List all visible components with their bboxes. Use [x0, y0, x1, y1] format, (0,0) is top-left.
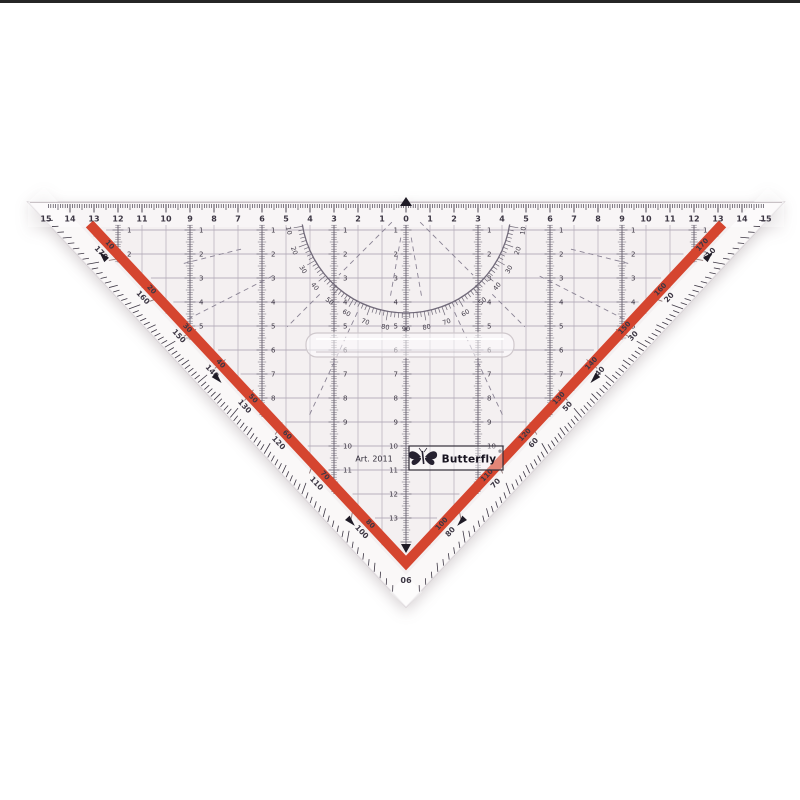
- svg-text:10: 10: [343, 443, 352, 451]
- svg-text:4: 4: [487, 299, 492, 307]
- svg-text:6: 6: [559, 347, 564, 355]
- svg-text:7: 7: [235, 215, 241, 224]
- svg-text:1: 1: [379, 215, 385, 224]
- svg-text:7: 7: [559, 371, 563, 379]
- svg-text:6: 6: [259, 215, 265, 224]
- svg-text:4: 4: [499, 215, 505, 224]
- svg-text:4: 4: [307, 215, 313, 224]
- svg-text:10: 10: [519, 226, 528, 236]
- svg-text:13: 13: [712, 215, 723, 224]
- svg-text:10: 10: [284, 226, 293, 236]
- svg-text:15: 15: [40, 215, 52, 224]
- svg-text:2: 2: [199, 251, 203, 259]
- svg-text:2: 2: [343, 251, 347, 259]
- svg-text:7: 7: [343, 371, 347, 379]
- svg-text:4: 4: [199, 299, 204, 307]
- svg-text:14: 14: [64, 215, 76, 224]
- svg-text:12: 12: [688, 215, 699, 224]
- svg-text:4: 4: [343, 299, 348, 307]
- svg-text:5: 5: [283, 215, 289, 224]
- svg-text:9: 9: [394, 419, 398, 427]
- svg-text:11: 11: [343, 467, 352, 475]
- svg-text:5: 5: [343, 323, 347, 331]
- brand-box: Butterfly ®: [409, 446, 503, 470]
- svg-text:9: 9: [487, 419, 491, 427]
- svg-text:3: 3: [199, 275, 203, 283]
- svg-text:12: 12: [112, 215, 123, 224]
- set-square-ruler: 1234567891011121312345678910111234567891…: [28, 187, 784, 607]
- svg-text:5: 5: [523, 215, 529, 224]
- svg-text:1: 1: [427, 215, 433, 224]
- svg-text:8: 8: [487, 395, 491, 403]
- svg-text:14: 14: [736, 215, 748, 224]
- svg-text:6: 6: [271, 347, 276, 355]
- svg-text:8: 8: [394, 395, 398, 403]
- svg-text:9: 9: [187, 215, 193, 224]
- finger-grip-handle: [306, 333, 514, 357]
- svg-text:7: 7: [571, 215, 577, 224]
- svg-text:6: 6: [547, 215, 553, 224]
- svg-text:3: 3: [475, 215, 481, 224]
- svg-text:10: 10: [160, 215, 172, 224]
- svg-text:1: 1: [559, 227, 563, 235]
- svg-text:10: 10: [640, 215, 652, 224]
- svg-text:5: 5: [199, 323, 203, 331]
- trademark-symbol: ®: [498, 448, 503, 455]
- svg-text:90: 90: [402, 325, 410, 333]
- svg-text:11: 11: [664, 215, 676, 224]
- svg-text:13: 13: [389, 515, 398, 523]
- brand-text: Butterfly: [442, 454, 497, 466]
- svg-text:1: 1: [271, 227, 275, 235]
- svg-text:7: 7: [271, 371, 275, 379]
- svg-text:15: 15: [760, 215, 772, 224]
- svg-text:4: 4: [271, 299, 276, 307]
- svg-text:2: 2: [631, 251, 635, 259]
- svg-text:3: 3: [331, 215, 337, 224]
- svg-text:1: 1: [631, 227, 635, 235]
- svg-text:13: 13: [88, 215, 99, 224]
- svg-text:8: 8: [271, 395, 275, 403]
- svg-text:5: 5: [394, 323, 398, 331]
- svg-text:1: 1: [487, 227, 491, 235]
- svg-text:5: 5: [271, 323, 275, 331]
- svg-text:3: 3: [271, 275, 275, 283]
- svg-text:11: 11: [136, 215, 148, 224]
- svg-text:7: 7: [394, 371, 398, 379]
- svg-text:2: 2: [559, 251, 563, 259]
- svg-text:3: 3: [343, 275, 347, 283]
- svg-text:1: 1: [394, 227, 398, 235]
- svg-text:4: 4: [559, 299, 564, 307]
- set-square-illustration: 1234567891011121312345678910111234567891…: [0, 0, 800, 800]
- svg-text:12: 12: [389, 491, 398, 499]
- article-number: Art. 2011: [355, 455, 392, 464]
- svg-text:5: 5: [559, 323, 563, 331]
- svg-text:4: 4: [394, 299, 399, 307]
- svg-text:2: 2: [127, 251, 131, 259]
- svg-text:1: 1: [703, 227, 707, 235]
- svg-text:1: 1: [199, 227, 203, 235]
- svg-text:2: 2: [487, 251, 491, 259]
- svg-text:10: 10: [389, 443, 398, 451]
- svg-text:1: 1: [127, 227, 131, 235]
- svg-text:9: 9: [619, 215, 625, 224]
- svg-text:3: 3: [559, 275, 563, 283]
- svg-text:80: 80: [381, 323, 391, 332]
- product-photo: 1234567891011121312345678910111234567891…: [0, 0, 800, 800]
- svg-text:7: 7: [487, 371, 491, 379]
- svg-text:5: 5: [487, 323, 491, 331]
- svg-text:8: 8: [211, 215, 217, 224]
- svg-text:0: 0: [403, 215, 409, 224]
- svg-text:80: 80: [422, 323, 432, 332]
- svg-text:2: 2: [451, 215, 457, 224]
- svg-text:11: 11: [389, 467, 398, 475]
- svg-text:9: 9: [343, 419, 347, 427]
- svg-text:2: 2: [355, 215, 361, 224]
- svg-text:2: 2: [271, 251, 275, 259]
- svg-text:3: 3: [631, 275, 635, 283]
- svg-text:1: 1: [343, 227, 347, 235]
- svg-text:4: 4: [631, 299, 636, 307]
- svg-text:8: 8: [595, 215, 601, 224]
- apex-degree-label: 90: [400, 575, 412, 584]
- svg-text:8: 8: [343, 395, 347, 403]
